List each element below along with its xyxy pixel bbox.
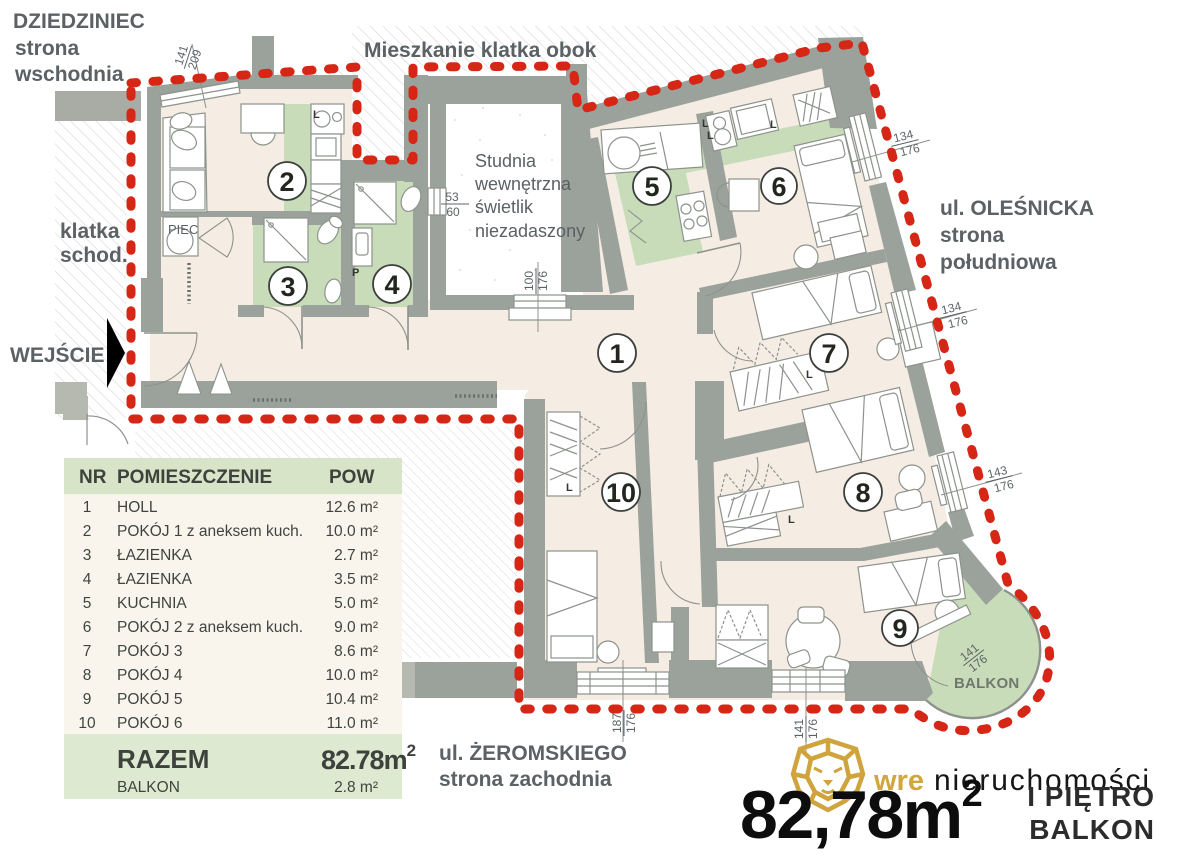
svg-text:schod.: schod.: [60, 244, 128, 267]
svg-text:I PIĘTRO: I PIĘTRO: [1027, 781, 1155, 812]
svg-text:POMIESZCZENIE: POMIESZCZENIE: [117, 467, 272, 488]
svg-text:3: 3: [83, 547, 92, 564]
svg-text:1: 1: [83, 499, 92, 516]
svg-text:100: 100: [522, 271, 536, 291]
svg-text:KUCHNIA: KUCHNIA: [117, 595, 187, 612]
svg-text:BALKON: BALKON: [954, 675, 1019, 692]
svg-text:ul. ŻEROMSKIEGO: ul. ŻEROMSKIEGO: [439, 742, 627, 765]
svg-text:południowa: południowa: [940, 251, 1057, 274]
svg-text:5: 5: [83, 595, 92, 612]
svg-text:L: L: [770, 119, 777, 131]
svg-text:141: 141: [792, 719, 806, 739]
svg-text:L: L: [702, 118, 709, 130]
svg-text:wschodnia: wschodnia: [14, 63, 124, 86]
svg-text:10.0 m²: 10.0 m²: [325, 667, 378, 684]
svg-text:176: 176: [806, 719, 820, 739]
svg-text:WEJŚCIE: WEJŚCIE: [10, 343, 105, 367]
svg-text:2.7 m²: 2.7 m²: [334, 547, 378, 564]
svg-text:L: L: [806, 369, 813, 381]
svg-text:POKÓJ 6: POKÓJ 6: [117, 715, 182, 732]
svg-text:3: 3: [280, 272, 295, 302]
svg-text:2.8 m²: 2.8 m²: [334, 779, 378, 796]
svg-text:8: 8: [83, 667, 92, 684]
svg-text:Studnia: Studnia: [475, 151, 537, 171]
svg-text:10.0 m²: 10.0 m²: [325, 523, 378, 540]
svg-text:82.78m2: 82.78m2: [321, 741, 416, 775]
svg-text:L: L: [707, 130, 714, 142]
svg-text:RAZEM: RAZEM: [117, 744, 209, 774]
svg-text:12.6 m²: 12.6 m²: [325, 499, 378, 516]
svg-text:11.0 m²: 11.0 m²: [327, 715, 378, 732]
svg-text:Mieszkanie klatka obok: Mieszkanie klatka obok: [364, 39, 597, 62]
svg-text:L: L: [566, 482, 573, 494]
svg-text:9: 9: [83, 691, 92, 708]
svg-text:10: 10: [606, 478, 636, 508]
svg-text:7: 7: [821, 339, 836, 369]
svg-text:klatka: klatka: [60, 220, 120, 243]
svg-text:NR: NR: [79, 467, 107, 488]
svg-text:7: 7: [83, 643, 92, 660]
svg-text:POKÓJ 4: POKÓJ 4: [117, 667, 183, 684]
svg-text:ŁAZIENKA: ŁAZIENKA: [117, 571, 193, 588]
svg-text:POKÓJ 3: POKÓJ 3: [117, 643, 182, 660]
svg-text:3.5 m²: 3.5 m²: [334, 571, 378, 588]
svg-text:ŁAZIENKA: ŁAZIENKA: [117, 547, 193, 564]
svg-text:6: 6: [83, 619, 92, 636]
svg-text:POKÓJ 2 z aneksem kuch.: POKÓJ 2 z aneksem kuch.: [117, 619, 303, 636]
svg-text:niezadaszony: niezadaszony: [475, 221, 585, 241]
svg-text:świetlik: świetlik: [475, 197, 534, 217]
svg-text:wewnętrzna: wewnętrzna: [474, 174, 572, 194]
svg-text:10: 10: [78, 715, 96, 732]
svg-text:POKÓJ 5: POKÓJ 5: [117, 691, 182, 708]
svg-text:6: 6: [771, 172, 786, 202]
svg-text:176: 176: [624, 713, 638, 733]
svg-text:1: 1: [609, 339, 624, 369]
svg-text:PIEC: PIEC: [168, 222, 198, 237]
svg-text:strona: strona: [15, 37, 80, 60]
svg-text:BALKON: BALKON: [117, 779, 180, 796]
svg-text:9: 9: [892, 614, 907, 644]
svg-text:53: 53: [445, 190, 459, 204]
svg-text:ul. OLEŚNICKA: ul. OLEŚNICKA: [940, 196, 1094, 220]
svg-text:5: 5: [644, 172, 659, 202]
svg-text:10.4 m²: 10.4 m²: [325, 691, 378, 708]
svg-text:8: 8: [855, 478, 870, 508]
svg-text:4: 4: [83, 571, 92, 588]
svg-text:60: 60: [446, 205, 460, 219]
svg-text:P: P: [352, 267, 359, 279]
svg-text:DZIEDZINIEC: DZIEDZINIEC: [13, 10, 145, 33]
svg-text:strona zachodnia: strona zachodnia: [439, 768, 612, 791]
svg-text:BALKON: BALKON: [1029, 814, 1155, 845]
svg-text:2: 2: [83, 523, 92, 540]
svg-text:L: L: [313, 109, 320, 121]
svg-text:82,78m2: 82,78m2: [740, 773, 982, 853]
svg-text:9.0 m²: 9.0 m²: [334, 619, 378, 636]
svg-text:187: 187: [610, 713, 624, 733]
svg-text:5.0 m²: 5.0 m²: [334, 595, 378, 612]
svg-text:2: 2: [279, 167, 294, 197]
svg-text:176: 176: [536, 271, 550, 291]
svg-text:8.6 m²: 8.6 m²: [334, 643, 378, 660]
svg-text:strona: strona: [940, 224, 1005, 247]
svg-text:POKÓJ 1 z aneksem kuch.: POKÓJ 1 z aneksem kuch.: [117, 523, 303, 540]
svg-text:L: L: [788, 514, 795, 526]
svg-text:4: 4: [384, 270, 399, 300]
svg-text:POW: POW: [329, 467, 374, 488]
svg-text:HOLL: HOLL: [117, 499, 158, 516]
